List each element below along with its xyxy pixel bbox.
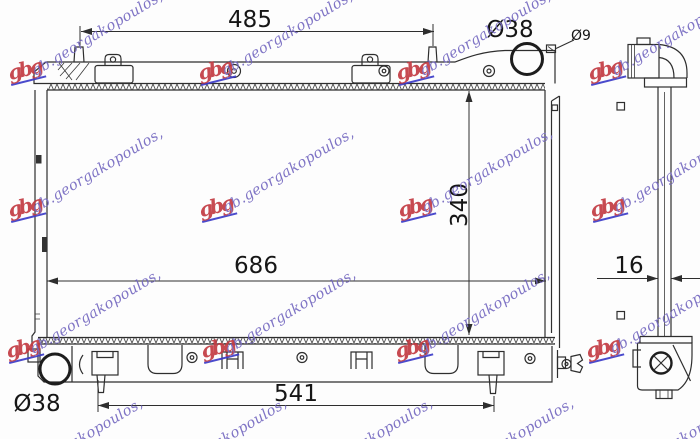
dim-bolt-diameter: Ø9 xyxy=(571,28,591,44)
top-pin-left xyxy=(74,47,84,62)
side-bottom-tank xyxy=(633,337,692,399)
dim-541-label: 541 xyxy=(274,381,318,407)
radiator-technical-drawing: 485 Ø38 Ø9 340 686 16 Ø38 xyxy=(0,0,700,439)
right-plate-square xyxy=(552,105,558,111)
dim-16: 16 xyxy=(597,253,700,282)
side-flange xyxy=(645,78,687,87)
dim-cap-label: Ø38 xyxy=(486,17,533,43)
bottom-fin-serration xyxy=(38,338,555,345)
drain-plug xyxy=(558,355,583,373)
dim-340-label: 340 xyxy=(447,183,473,227)
bottom-cup-1 xyxy=(148,345,182,374)
core-side-plates xyxy=(32,90,560,348)
side-elbow-curve xyxy=(659,45,687,79)
dim-485-label: 485 xyxy=(228,7,272,33)
side-view xyxy=(617,38,692,399)
left-side-plate xyxy=(32,90,47,346)
side-clip-top xyxy=(617,103,625,111)
bottom-bracket-c xyxy=(351,352,372,369)
bottom-cup-2 xyxy=(425,345,458,374)
top-clip-left xyxy=(95,55,133,84)
filler-cap-circle xyxy=(512,44,543,75)
left-plate-tick-2 xyxy=(42,237,47,252)
left-funnel-hatch xyxy=(58,63,89,80)
bottom-bracket-a xyxy=(92,352,118,393)
technical-drawing-page: 485 Ø38 Ø9 340 686 16 Ø38 xyxy=(0,0,700,439)
top-tank-outline xyxy=(34,51,555,84)
top-pin-right xyxy=(428,47,437,62)
top-fin-serration xyxy=(47,84,545,91)
side-top-tab xyxy=(637,38,650,45)
left-plate-notch xyxy=(35,314,40,319)
dim-outlet-label: Ø38 xyxy=(13,391,60,417)
dim-686-label: 686 xyxy=(234,253,278,279)
outlet-circle xyxy=(40,354,70,384)
side-clip-bottom xyxy=(617,312,625,320)
dim-cap-diameter: Ø38 xyxy=(486,17,533,43)
dim-541: 541 xyxy=(98,380,494,412)
top-tank xyxy=(34,40,574,90)
left-plate-tick-1 xyxy=(36,155,42,164)
dim-485: 485 xyxy=(80,7,434,46)
dimensions: 485 Ø38 Ø9 340 686 16 Ø38 xyxy=(13,7,700,417)
bottom-bracket-d xyxy=(478,352,504,394)
bottom-bracket-b xyxy=(222,352,243,369)
flange-curve xyxy=(80,355,84,374)
front-view xyxy=(28,40,583,394)
dim-340: 340 xyxy=(447,91,473,335)
dim-bolt-label: Ø9 xyxy=(571,28,591,44)
right-side-plate xyxy=(545,90,560,348)
dim-686: 686 xyxy=(47,253,546,285)
side-elbow-body xyxy=(628,45,659,79)
dim-outlet-diameter: Ø38 xyxy=(13,391,60,417)
side-elbow-ribs xyxy=(632,45,635,79)
tank-screws xyxy=(228,65,495,78)
dim-16-label: 16 xyxy=(614,253,643,279)
side-foot xyxy=(656,390,672,399)
bottom-tank-outline xyxy=(38,345,558,382)
